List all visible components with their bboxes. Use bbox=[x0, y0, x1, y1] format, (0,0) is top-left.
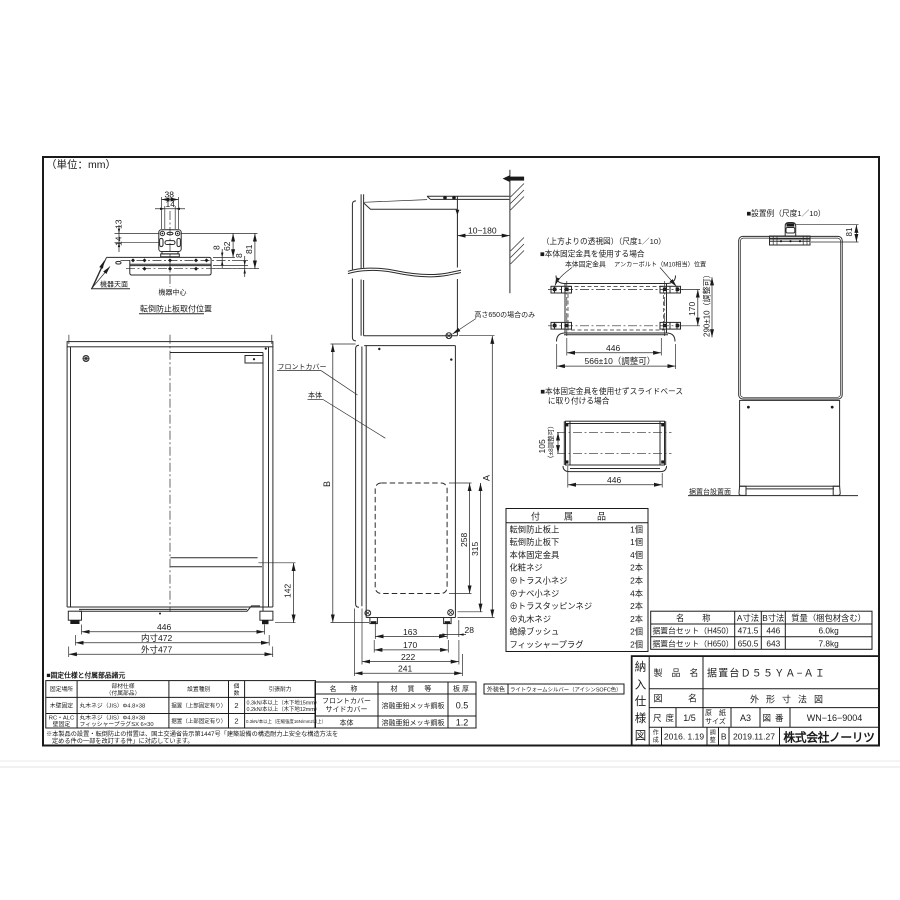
svg-text:⊕トラス小ネジ: ⊕トラス小ネジ bbox=[510, 576, 568, 586]
svg-text:7.8kg: 7.8kg bbox=[818, 638, 839, 648]
svg-text:471.5: 471.5 bbox=[738, 626, 759, 636]
svg-text:丸木ネジ（JIS）Φ4.8×38: 丸木ネジ（JIS）Φ4.8×38 bbox=[80, 714, 146, 722]
svg-text:名称: 名称 bbox=[676, 613, 729, 623]
svg-text:納: 納 bbox=[635, 661, 647, 674]
svg-text:■本体固定金具を使用せずスライドベース: ■本体固定金具を使用せずスライドベース bbox=[540, 386, 683, 396]
svg-text:2個: 2個 bbox=[630, 627, 643, 637]
svg-text:（付属部品）: （付属部品） bbox=[106, 689, 141, 697]
svg-text:0.2kN/本以上（木下地12mm）: 0.2kN/本以上（木下地12mm） bbox=[247, 705, 321, 713]
svg-text:241: 241 bbox=[398, 664, 412, 674]
svg-text:本体: 本体 bbox=[340, 718, 354, 727]
svg-text:据置台Ｄ５５ＹＡ−ＡＩ: 据置台Ｄ５５ＹＡ−ＡＩ bbox=[707, 667, 826, 680]
svg-text:2本: 2本 bbox=[630, 576, 643, 586]
svg-text:A寸法: A寸法 bbox=[737, 613, 759, 623]
svg-text:B寸法: B寸法 bbox=[762, 613, 784, 623]
svg-text:2: 2 bbox=[234, 701, 238, 710]
svg-text:（±8調整可）: （±8調整可） bbox=[546, 422, 555, 462]
svg-text:定める件の一部を改訂する件」に対応しています。: 定める件の一部を改訂する件」に対応しています。 bbox=[52, 737, 194, 745]
svg-text:名: 名 bbox=[688, 693, 697, 704]
svg-text:81: 81 bbox=[845, 227, 854, 236]
svg-text:（上方よりの透視図）（尺度1／10）: （上方よりの透視図）（尺度1／10） bbox=[542, 236, 666, 246]
svg-text:2: 2 bbox=[234, 717, 238, 726]
svg-text:整: 整 bbox=[710, 736, 716, 744]
svg-text:調: 調 bbox=[710, 729, 716, 737]
svg-text:2本: 2本 bbox=[630, 563, 643, 573]
svg-text:2016. 1.19: 2016. 1.19 bbox=[664, 732, 704, 742]
svg-text:据置台設置面: 据置台設置面 bbox=[689, 487, 731, 496]
svg-text:外装色: 外装色 bbox=[487, 686, 505, 694]
svg-text:163: 163 bbox=[403, 627, 417, 637]
svg-text:315: 315 bbox=[470, 542, 480, 556]
svg-text:ライトウォームシルバー（アイシンSOFC色）: ライトウォームシルバー（アイシンSOFC色） bbox=[510, 685, 622, 693]
svg-text:8: 8 bbox=[212, 245, 222, 250]
svg-text:446: 446 bbox=[606, 343, 620, 353]
svg-text:製品名: 製品名 bbox=[654, 667, 708, 678]
svg-text:1個: 1個 bbox=[630, 537, 643, 547]
svg-text:643: 643 bbox=[766, 638, 780, 648]
svg-text:105: 105 bbox=[537, 439, 547, 453]
svg-text:⊕丸木ネジ: ⊕丸木ネジ bbox=[510, 614, 552, 624]
svg-text:材 質 等: 材 質 等 bbox=[391, 684, 436, 693]
svg-text:62: 62 bbox=[222, 241, 232, 251]
svg-text:1個: 1個 bbox=[630, 524, 643, 534]
svg-text:2本: 2本 bbox=[630, 601, 643, 611]
svg-text:フィッシャープラグ: フィッシャープラグ bbox=[510, 640, 584, 650]
svg-text:A3: A3 bbox=[740, 713, 751, 723]
svg-text:222: 222 bbox=[401, 652, 415, 662]
svg-text:図: 図 bbox=[635, 730, 647, 743]
svg-text:外形寸法図: 外形寸法図 bbox=[750, 694, 830, 705]
svg-text:溶融亜鉛メッキ鋼板: 溶融亜鉛メッキ鋼板 bbox=[382, 718, 445, 727]
svg-text:⊕トラスタッピンネジ: ⊕トラスタッピンネジ bbox=[510, 601, 593, 611]
svg-text:※本製品の設置・転倒防止の措置は、国土交通省告示第1447号: ※本製品の設置・転倒防止の措置は、国土交通省告示第1447号「建築設備の構造耐力… bbox=[46, 730, 338, 738]
svg-text:据置（上部固定有り）: 据置（上部固定有り） bbox=[171, 702, 226, 710]
svg-text:本体: 本体 bbox=[308, 391, 322, 400]
svg-text:■設置例（尺度1／10）: ■設置例（尺度1／10） bbox=[747, 208, 826, 218]
svg-text:付属品: 付属品 bbox=[531, 512, 630, 522]
svg-text:溶融亜鉛メッキ鋼板: 溶融亜鉛メッキ鋼板 bbox=[382, 701, 445, 710]
svg-text:据置台セット（H650）: 据置台セット（H650） bbox=[653, 638, 734, 648]
svg-text:転倒防止板上: 転倒防止板上 bbox=[510, 524, 560, 534]
svg-text:258: 258 bbox=[459, 533, 469, 547]
svg-text:B: B bbox=[322, 481, 332, 487]
svg-text:フィッシャープラグSX 6×30: フィッシャープラグSX 6×30 bbox=[80, 720, 154, 728]
svg-text:名 称: 名 称 bbox=[330, 684, 364, 693]
svg-text:作: 作 bbox=[653, 729, 659, 737]
svg-text:28: 28 bbox=[465, 625, 475, 635]
svg-text:6.0kg: 6.0kg bbox=[818, 626, 839, 636]
svg-text:566±10（調整可）: 566±10（調整可） bbox=[585, 356, 656, 366]
svg-text:0.3kN/本以上（圧縮強度16N/mm2以上）: 0.3kN/本以上（圧縮強度16N/mm2以上） bbox=[246, 718, 326, 725]
svg-text:転倒防止板下: 転倒防止板下 bbox=[510, 537, 560, 547]
svg-text:RC・ALC: RC・ALC bbox=[49, 716, 74, 722]
svg-text:446: 446 bbox=[766, 626, 780, 636]
svg-text:様: 様 bbox=[635, 711, 647, 725]
svg-text:B: B bbox=[721, 732, 727, 742]
svg-text:フロントカバー: フロントカバー bbox=[322, 697, 371, 705]
svg-text:数: 数 bbox=[234, 689, 240, 697]
svg-text:質量（梱包材含む）: 質量（梱包材含む） bbox=[791, 613, 866, 623]
svg-text:サイドカバー: サイドカバー bbox=[326, 705, 368, 713]
svg-text:尺度: 尺度 bbox=[653, 713, 678, 723]
svg-text:壁固定: 壁固定 bbox=[53, 720, 71, 728]
svg-text:アンカーボルト（M10相当）位置: アンカーボルト（M10相当）位置 bbox=[614, 261, 706, 269]
svg-text:4個: 4個 bbox=[630, 550, 643, 560]
svg-text:外寸477: 外寸477 bbox=[141, 645, 172, 655]
svg-text:フロントカバー: フロントカバー bbox=[278, 363, 327, 371]
svg-text:■本体固定金具を使用する場合: ■本体固定金具を使用する場合 bbox=[540, 249, 645, 259]
svg-text:290±10（調整可）: 290±10（調整可） bbox=[702, 270, 712, 337]
svg-text:に取り付ける場合: に取り付ける場合 bbox=[548, 396, 610, 406]
svg-text:WN−16−9004: WN−16−9004 bbox=[807, 713, 863, 723]
svg-text:転倒防止板取付位置: 転倒防止板取付位置 bbox=[140, 304, 212, 314]
svg-text:据置台セット（H450）: 据置台セット（H450） bbox=[653, 626, 734, 636]
svg-text:株式会社ノーリツ: 株式会社ノーリツ bbox=[783, 731, 874, 745]
svg-text:引張耐力: 引張耐力 bbox=[268, 685, 291, 693]
svg-text:10~180: 10~180 bbox=[468, 226, 497, 236]
svg-text:4本: 4本 bbox=[630, 588, 643, 598]
svg-text:142: 142 bbox=[283, 584, 293, 598]
svg-text:A: A bbox=[482, 475, 492, 481]
svg-text:38: 38 bbox=[165, 190, 175, 200]
svg-text:14: 14 bbox=[166, 199, 176, 209]
svg-text:170: 170 bbox=[403, 640, 417, 650]
svg-text:650.5: 650.5 bbox=[738, 638, 759, 648]
svg-text:1/5: 1/5 bbox=[683, 713, 696, 723]
svg-text:81: 81 bbox=[244, 244, 254, 254]
svg-text:2019.11.27: 2019.11.27 bbox=[733, 732, 775, 742]
svg-text:木壁固定: 木壁固定 bbox=[50, 702, 73, 710]
svg-text:本体固定金具: 本体固定金具 bbox=[565, 260, 606, 269]
svg-text:■固定仕様と付属部品諸元: ■固定仕様と付属部品諸元 bbox=[46, 671, 125, 680]
svg-text:機器天面: 機器天面 bbox=[100, 279, 128, 288]
svg-text:絶縁ブッシュ: 絶縁ブッシュ bbox=[510, 627, 560, 637]
svg-text:原 紙: 原 紙 bbox=[705, 708, 726, 717]
svg-text:化粧ネジ: 化粧ネジ bbox=[510, 563, 543, 573]
svg-text:板厚: 板厚 bbox=[453, 684, 471, 693]
svg-text:14: 14 bbox=[114, 236, 124, 246]
svg-text:固定場所: 固定場所 bbox=[50, 685, 73, 693]
svg-text:2本: 2本 bbox=[630, 614, 643, 624]
svg-text:図: 図 bbox=[654, 694, 663, 704]
svg-text:入: 入 bbox=[635, 678, 647, 691]
svg-text:446: 446 bbox=[607, 475, 621, 485]
svg-text:機器中心: 機器中心 bbox=[159, 288, 187, 297]
svg-text:丸木ネジ（JIS）Φ4.8×38: 丸木ネジ（JIS）Φ4.8×38 bbox=[80, 702, 146, 710]
svg-text:内寸472: 内寸472 bbox=[141, 633, 172, 643]
svg-text:高さ650の場合のみ: 高さ650の場合のみ bbox=[474, 310, 535, 319]
svg-text:2個: 2個 bbox=[630, 640, 643, 650]
svg-text:サイズ: サイズ bbox=[705, 717, 726, 726]
svg-text:図番: 図番 bbox=[763, 713, 788, 723]
svg-text:446: 446 bbox=[157, 622, 171, 632]
svg-text:0.5: 0.5 bbox=[456, 701, 469, 711]
svg-text:170: 170 bbox=[687, 302, 697, 316]
svg-text:設置種別: 設置種別 bbox=[187, 685, 210, 693]
svg-text:成: 成 bbox=[653, 736, 659, 744]
svg-text:0.3kN/本以上（木下地15mm）: 0.3kN/本以上（木下地15mm） bbox=[247, 699, 321, 707]
svg-text:仕: 仕 bbox=[635, 695, 647, 708]
svg-text:1.2: 1.2 bbox=[456, 717, 469, 727]
svg-text:据置（上部固定有り）: 据置（上部固定有り） bbox=[171, 717, 226, 725]
svg-text:⊕ナベ小ネジ: ⊕ナベ小ネジ bbox=[510, 588, 560, 598]
svg-text:個: 個 bbox=[234, 682, 240, 690]
svg-text:（単位：mm）: （単位：mm） bbox=[46, 158, 116, 171]
svg-text:13: 13 bbox=[114, 219, 124, 229]
svg-text:8: 8 bbox=[234, 253, 244, 258]
svg-text:部材仕様: 部材仕様 bbox=[111, 682, 134, 690]
svg-text:本体固定金具: 本体固定金具 bbox=[510, 550, 560, 560]
